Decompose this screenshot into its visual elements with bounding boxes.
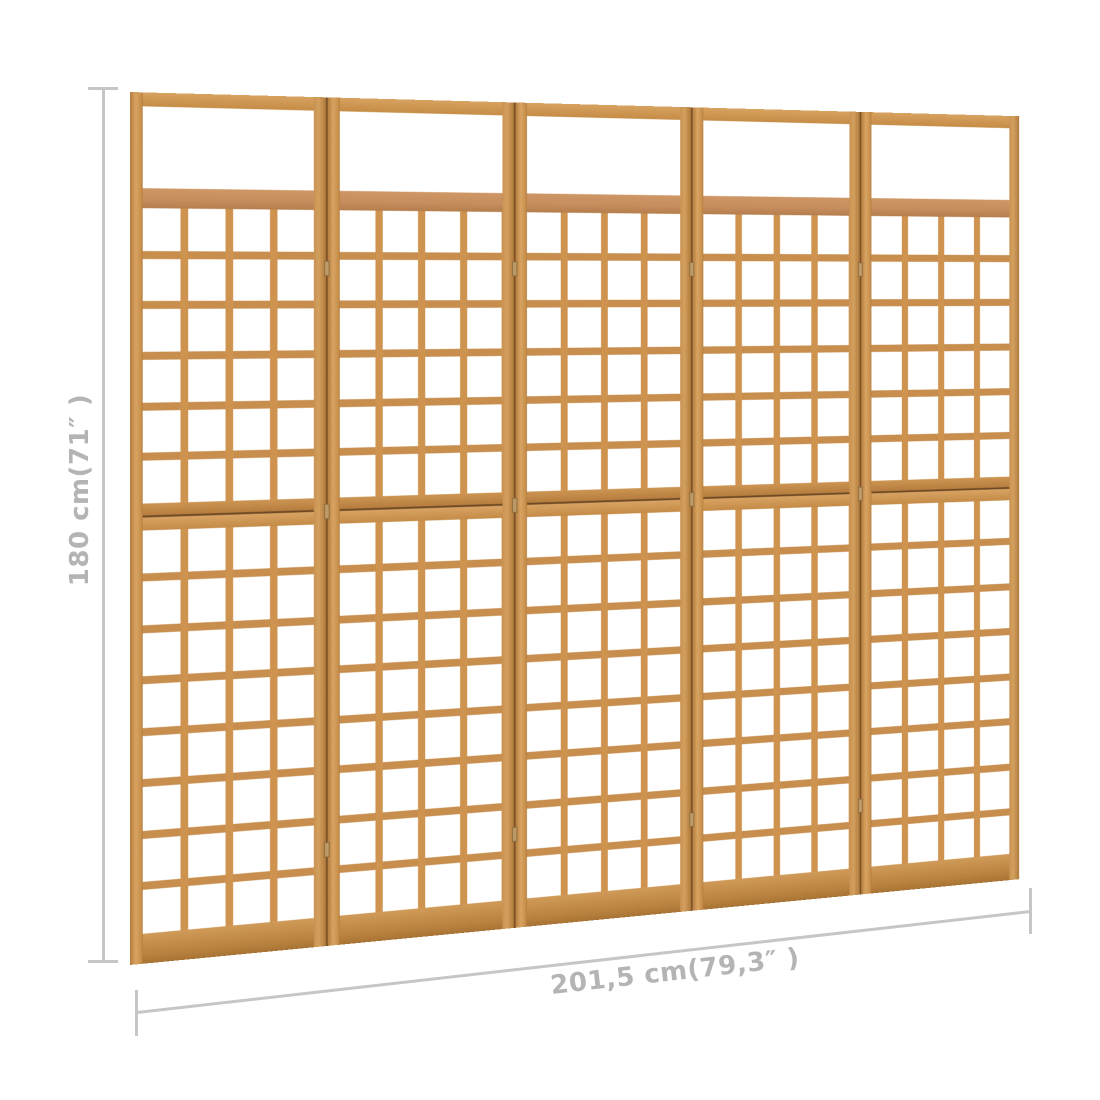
panel-upper-lattice <box>527 212 681 491</box>
panel-upper-lattice <box>871 216 1009 481</box>
panel-window-rail <box>527 193 681 214</box>
width-dimension-cap-left <box>135 990 138 1036</box>
trellis-panel <box>515 102 691 927</box>
height-dimension-line <box>102 88 105 962</box>
trellis-panel <box>861 112 1019 895</box>
trellis-panel <box>693 107 860 910</box>
panel-window-rail <box>143 188 315 210</box>
panel-lower-lattice <box>704 506 850 882</box>
panel-open-window <box>871 125 1009 200</box>
height-dimension-label: 180 cm(71″ ) <box>65 394 95 586</box>
hinge <box>512 827 517 843</box>
hinge <box>512 261 517 276</box>
panel-lower-lattice <box>143 525 315 934</box>
trellis-panel <box>130 92 326 965</box>
panel-open-window <box>143 106 315 190</box>
hinge <box>858 262 863 276</box>
panel-lower-lattice <box>527 512 681 899</box>
width-dimension-cap-right <box>1029 888 1032 934</box>
trellis-room-divider <box>130 92 1019 965</box>
hinge <box>324 842 330 858</box>
panel-upper-lattice <box>340 210 502 497</box>
trellis-panel <box>328 97 514 945</box>
panel-window-rail <box>340 191 502 212</box>
panel-upper-lattice <box>143 208 315 503</box>
hinge <box>689 492 694 507</box>
panel-upper-lattice <box>704 214 850 486</box>
height-dimension-cap-top <box>88 87 118 90</box>
hinge <box>858 487 863 502</box>
hinge <box>689 262 694 277</box>
hinge <box>858 798 863 813</box>
height-dimension-cap-bottom <box>88 960 118 963</box>
product-image-scene <box>130 92 1100 965</box>
hinge <box>324 504 330 520</box>
panel-window-rail <box>704 196 850 216</box>
panel-open-window <box>527 116 681 195</box>
hinge <box>689 812 694 827</box>
hinge <box>324 261 330 277</box>
hinge <box>512 498 517 513</box>
panel-open-window <box>340 111 502 193</box>
panel-lower-lattice <box>340 518 502 916</box>
panel-window-rail <box>871 198 1009 217</box>
panel-lower-lattice <box>871 500 1009 866</box>
panel-open-window <box>704 120 850 197</box>
